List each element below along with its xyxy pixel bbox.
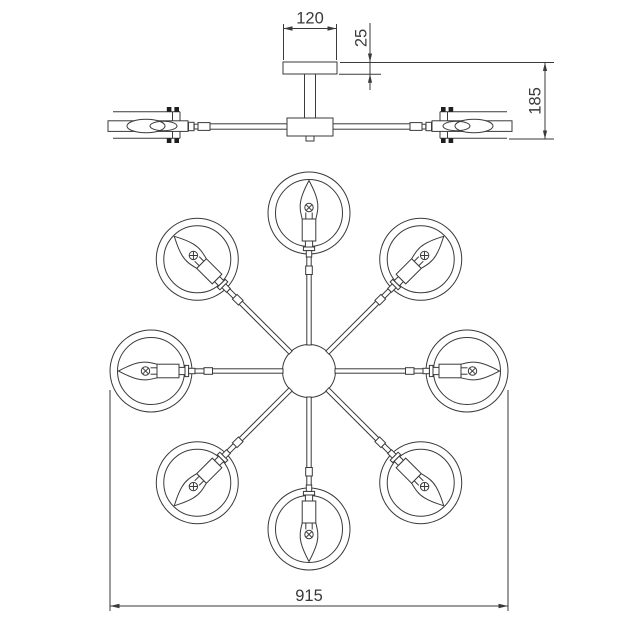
plan-lamp-4	[268, 397, 350, 570]
center-body-nub	[306, 136, 314, 141]
dimension-canopy-width: 120	[284, 10, 337, 61]
chandelier-drawing: 120 25 185 915	[0, 0, 630, 630]
side-arm-tube	[199, 124, 288, 129]
shade-clip	[174, 107, 179, 112]
drawing-canvas: 120 25 185 915	[0, 0, 630, 630]
shade-clip	[174, 138, 179, 143]
side-lamp-left	[108, 107, 287, 143]
arrowhead-icon	[328, 26, 337, 31]
plan-view	[110, 172, 508, 570]
arrowhead-icon	[368, 74, 372, 83]
dimension-canopy-thickness: 25	[339, 23, 381, 90]
plan-lamp-0	[268, 172, 350, 345]
arrowhead-icon	[110, 604, 120, 609]
side-view	[108, 62, 512, 143]
down-stem	[305, 74, 316, 118]
dimension-value-canopy-width: 120	[296, 10, 324, 28]
lamp-connector	[189, 122, 195, 130]
dimension-value-canopy-thickness: 25	[353, 29, 371, 47]
side-arm-joint	[198, 123, 210, 131]
arrowhead-icon	[368, 54, 372, 63]
side-lamp-right	[333, 107, 512, 143]
shade-clip	[167, 107, 172, 112]
plan-lamp-6	[110, 330, 283, 412]
dimension-value-fixture-height: 185	[527, 87, 545, 115]
ceiling-plate	[283, 62, 337, 74]
plan-lamp-2	[335, 330, 508, 412]
dimension-value-fixture-diameter: 915	[295, 587, 323, 605]
arrowhead-icon	[543, 131, 547, 140]
arrowhead-icon	[499, 604, 509, 609]
arrowhead-icon	[543, 63, 547, 72]
center-body	[287, 118, 333, 136]
arrowhead-icon	[284, 26, 293, 31]
shade-clip	[167, 138, 172, 143]
